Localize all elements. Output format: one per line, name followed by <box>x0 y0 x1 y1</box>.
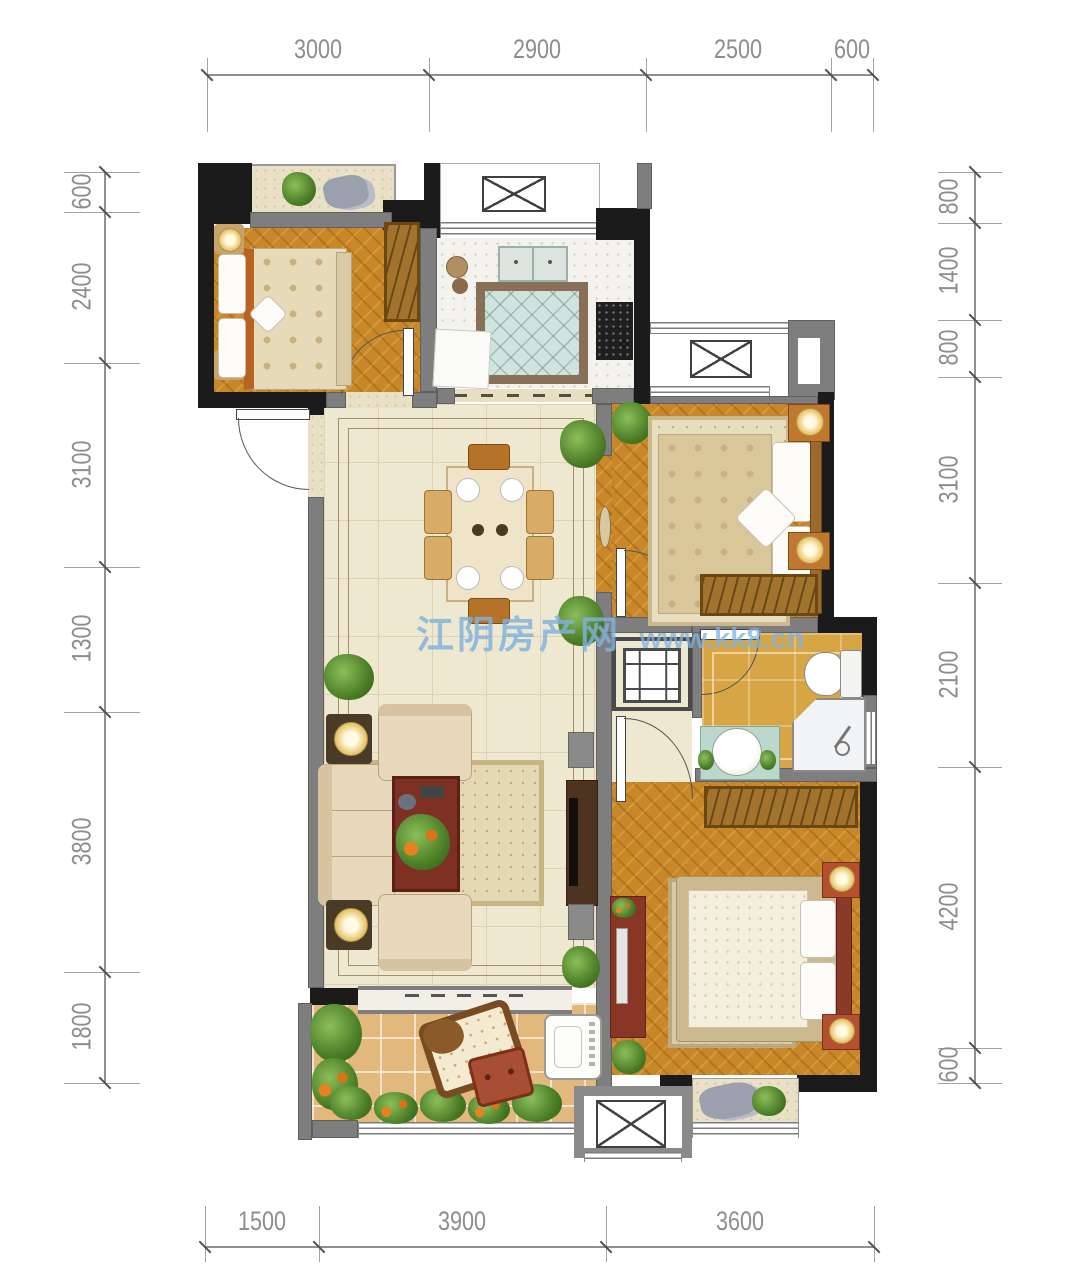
master-bay-glazing <box>692 1122 799 1138</box>
passage-deco <box>599 506 611 548</box>
lamp-icon <box>829 1018 855 1044</box>
plant-icon <box>374 1092 418 1124</box>
bedroom2-door-leaf <box>403 328 414 396</box>
lamp-icon <box>334 722 368 756</box>
sofa <box>318 764 395 906</box>
watermark-site-name: 江阴房产网 <box>416 615 621 657</box>
washing-machine <box>544 1014 602 1080</box>
dining-table <box>446 466 534 602</box>
bed <box>688 890 808 1028</box>
armchair <box>378 894 472 971</box>
pillow <box>218 318 246 378</box>
remote-tray <box>420 786 444 798</box>
shaft-x-icon <box>596 1100 666 1148</box>
wall <box>412 392 437 408</box>
bowl-deco <box>398 794 416 810</box>
dim-label: 2500 <box>706 36 770 63</box>
toilet-tank <box>840 650 862 698</box>
bay-plant-icon <box>282 172 316 206</box>
speaker <box>568 732 594 768</box>
wall <box>312 1120 358 1138</box>
washbasin-icon <box>712 728 762 776</box>
dining-chair <box>424 490 452 534</box>
dim-label: 600 <box>69 156 96 228</box>
dim-label: 3600 <box>708 1208 772 1235</box>
dim-label: 2900 <box>505 36 569 63</box>
lower-shaft-glazing <box>584 1152 682 1162</box>
wall <box>637 163 652 209</box>
bathroom-window <box>865 712 875 764</box>
dim-label: 2400 <box>69 251 96 323</box>
dim-label: 1400 <box>936 235 963 307</box>
plant-icon <box>760 750 776 770</box>
toilet-icon <box>804 652 844 696</box>
wall <box>860 768 877 1092</box>
entry-threshold <box>308 413 324 497</box>
lamp-icon <box>334 908 368 942</box>
wall <box>308 497 324 988</box>
wardrobe <box>704 786 858 828</box>
pillow <box>800 900 836 958</box>
floorplan-sheet: 3000 2900 2500 600 1500 3900 3600 600 24… <box>0 0 1080 1281</box>
wall <box>308 398 324 415</box>
wall <box>250 212 392 228</box>
stove <box>596 302 633 360</box>
dining-chair <box>468 444 510 470</box>
shaft-x-icon <box>690 340 752 378</box>
plant-icon <box>310 1004 362 1062</box>
dim-label: 1800 <box>69 991 96 1063</box>
plant-icon <box>612 1040 646 1074</box>
pillow <box>800 962 836 1020</box>
dim-label: 2100 <box>936 639 963 711</box>
dim-label: 3100 <box>69 429 96 501</box>
lamp-icon <box>829 866 855 892</box>
lamp-icon <box>796 408 824 436</box>
dim-label: 600 <box>936 1029 963 1101</box>
plant-icon <box>560 420 606 468</box>
wall <box>596 208 650 240</box>
dim-label: 4200 <box>936 871 963 943</box>
wall <box>198 212 214 404</box>
kitchen-counter-board <box>433 329 492 390</box>
balcony-window <box>358 1122 594 1138</box>
wall <box>818 617 877 633</box>
watermark: 江阴房产网 www.kk8.cn <box>416 604 804 659</box>
dim-label: 3000 <box>286 36 350 63</box>
table-flowers-icon <box>396 814 450 870</box>
plant-icon <box>330 1086 372 1120</box>
watermark-site-url: www.kk8.cn <box>639 623 804 655</box>
wall <box>424 163 440 238</box>
dim-label: 1300 <box>69 603 96 675</box>
shaft-side-notch <box>798 338 820 384</box>
wall <box>634 238 650 404</box>
flower-icon <box>612 898 636 918</box>
lamp-icon <box>218 228 242 252</box>
dish-icon <box>452 278 468 294</box>
armchair <box>378 704 472 781</box>
tv-icon <box>569 798 578 886</box>
entry-door-arc <box>238 418 309 490</box>
dim-label: 800 <box>936 312 963 384</box>
kitchen-island <box>476 282 588 384</box>
dining-chair <box>424 536 452 580</box>
wall <box>310 988 358 1005</box>
speaker <box>568 904 594 940</box>
dim-label: 3100 <box>936 444 963 516</box>
dining-chair <box>526 536 554 580</box>
dim-label: 600 <box>820 36 884 63</box>
plant-icon <box>698 750 714 770</box>
kitchen-sink <box>498 246 534 282</box>
dim-label: 3900 <box>430 1208 494 1235</box>
pillow <box>218 254 246 314</box>
lamp-icon <box>796 536 824 564</box>
dish-icon <box>446 256 468 278</box>
wardrobe <box>384 222 420 322</box>
dim-label: 1500 <box>230 1208 294 1235</box>
dresser-tv-icon <box>616 928 628 1004</box>
headboard <box>836 892 852 1026</box>
wall <box>650 396 818 404</box>
kitchen-pass-counter <box>455 389 592 402</box>
kitchen-sink <box>532 246 568 282</box>
plant-icon <box>612 402 652 444</box>
bay-plant-icon <box>752 1086 786 1116</box>
shaft-x-icon <box>482 176 546 212</box>
shaft-window-top <box>650 322 792 334</box>
dim-label: 3800 <box>69 806 96 878</box>
dining-chair <box>526 490 554 534</box>
wall <box>797 1075 877 1092</box>
wall <box>862 633 877 697</box>
bed-footboard <box>336 252 352 386</box>
plant-icon <box>562 946 600 988</box>
plant-icon <box>324 654 374 700</box>
wall <box>437 388 455 404</box>
kitchen-window <box>440 222 600 238</box>
dim-label: 800 <box>936 161 963 233</box>
